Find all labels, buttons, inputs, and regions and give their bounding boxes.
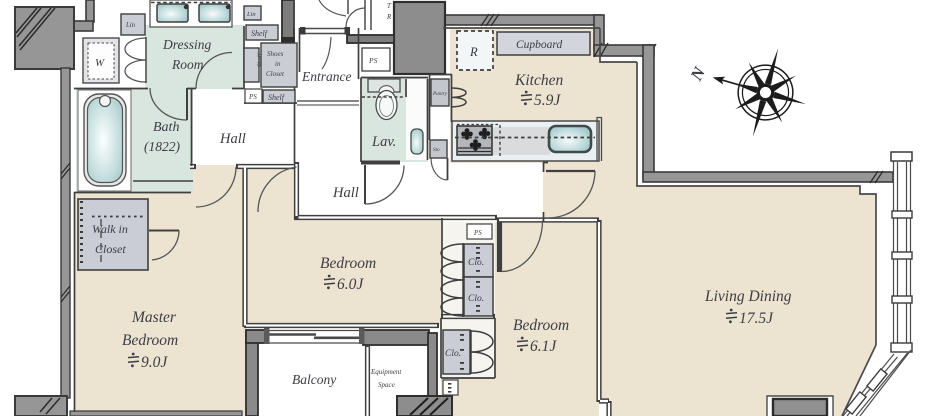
svg-text:PS: PS <box>473 229 482 237</box>
svg-text:9.0J: 9.0J <box>141 354 168 371</box>
svg-text:Dressing: Dressing <box>162 37 212 52</box>
svg-text:Lin: Lin <box>125 22 136 29</box>
svg-text:Bedroom: Bedroom <box>320 255 376 272</box>
svg-text:6.1J: 6.1J <box>530 338 557 355</box>
svg-text:5.9J: 5.9J <box>534 92 561 109</box>
svg-text:Kitchen: Kitchen <box>514 72 563 89</box>
svg-text:Entrance: Entrance <box>301 69 352 84</box>
svg-text:Shelf: Shelf <box>251 29 269 38</box>
svg-text:(1822): (1822) <box>144 139 180 154</box>
svg-text:Hall: Hall <box>219 131 246 147</box>
svg-text:Lin: Lin <box>246 11 256 18</box>
svg-text:W: W <box>95 57 105 69</box>
svg-text:PS: PS <box>248 93 257 101</box>
svg-text:Clo.: Clo. <box>468 258 484 268</box>
svg-text:Living Dining: Living Dining <box>704 288 792 305</box>
svg-text:Clo.: Clo. <box>468 294 484 304</box>
svg-text:Master: Master <box>131 309 177 326</box>
svg-text:Space: Space <box>378 381 395 389</box>
svg-text:R: R <box>386 13 392 21</box>
svg-text:Hall: Hall <box>332 185 359 201</box>
svg-text:Equipment: Equipment <box>370 368 402 376</box>
svg-text:Clo.: Clo. <box>445 349 461 359</box>
svg-text:Room: Room <box>171 57 204 72</box>
svg-text:17.5J: 17.5J <box>739 310 774 327</box>
svg-text:PS: PS <box>368 56 378 65</box>
svg-text:R: R <box>469 45 478 59</box>
svg-text:Shelf: Shelf <box>268 93 286 102</box>
svg-text:in: in <box>275 60 281 68</box>
svg-text:Sto: Sto <box>433 147 440 153</box>
svg-text:Lav.: Lav. <box>371 134 396 150</box>
svg-text:Walk in: Walk in <box>92 222 128 236</box>
svg-text:Cupboard: Cupboard <box>516 39 562 51</box>
svg-text:Closet: Closet <box>266 70 285 78</box>
svg-text:Balcony: Balcony <box>292 372 336 387</box>
svg-text:Bedroom: Bedroom <box>513 317 569 334</box>
svg-text:Bedroom: Bedroom <box>122 332 178 349</box>
svg-text:Shoes: Shoes <box>267 50 284 58</box>
svg-text:Closet: Closet <box>95 242 126 256</box>
svg-text:6.0J: 6.0J <box>337 276 364 293</box>
svg-text:Bath: Bath <box>153 120 179 135</box>
svg-text:Pantry: Pantry <box>432 91 448 97</box>
